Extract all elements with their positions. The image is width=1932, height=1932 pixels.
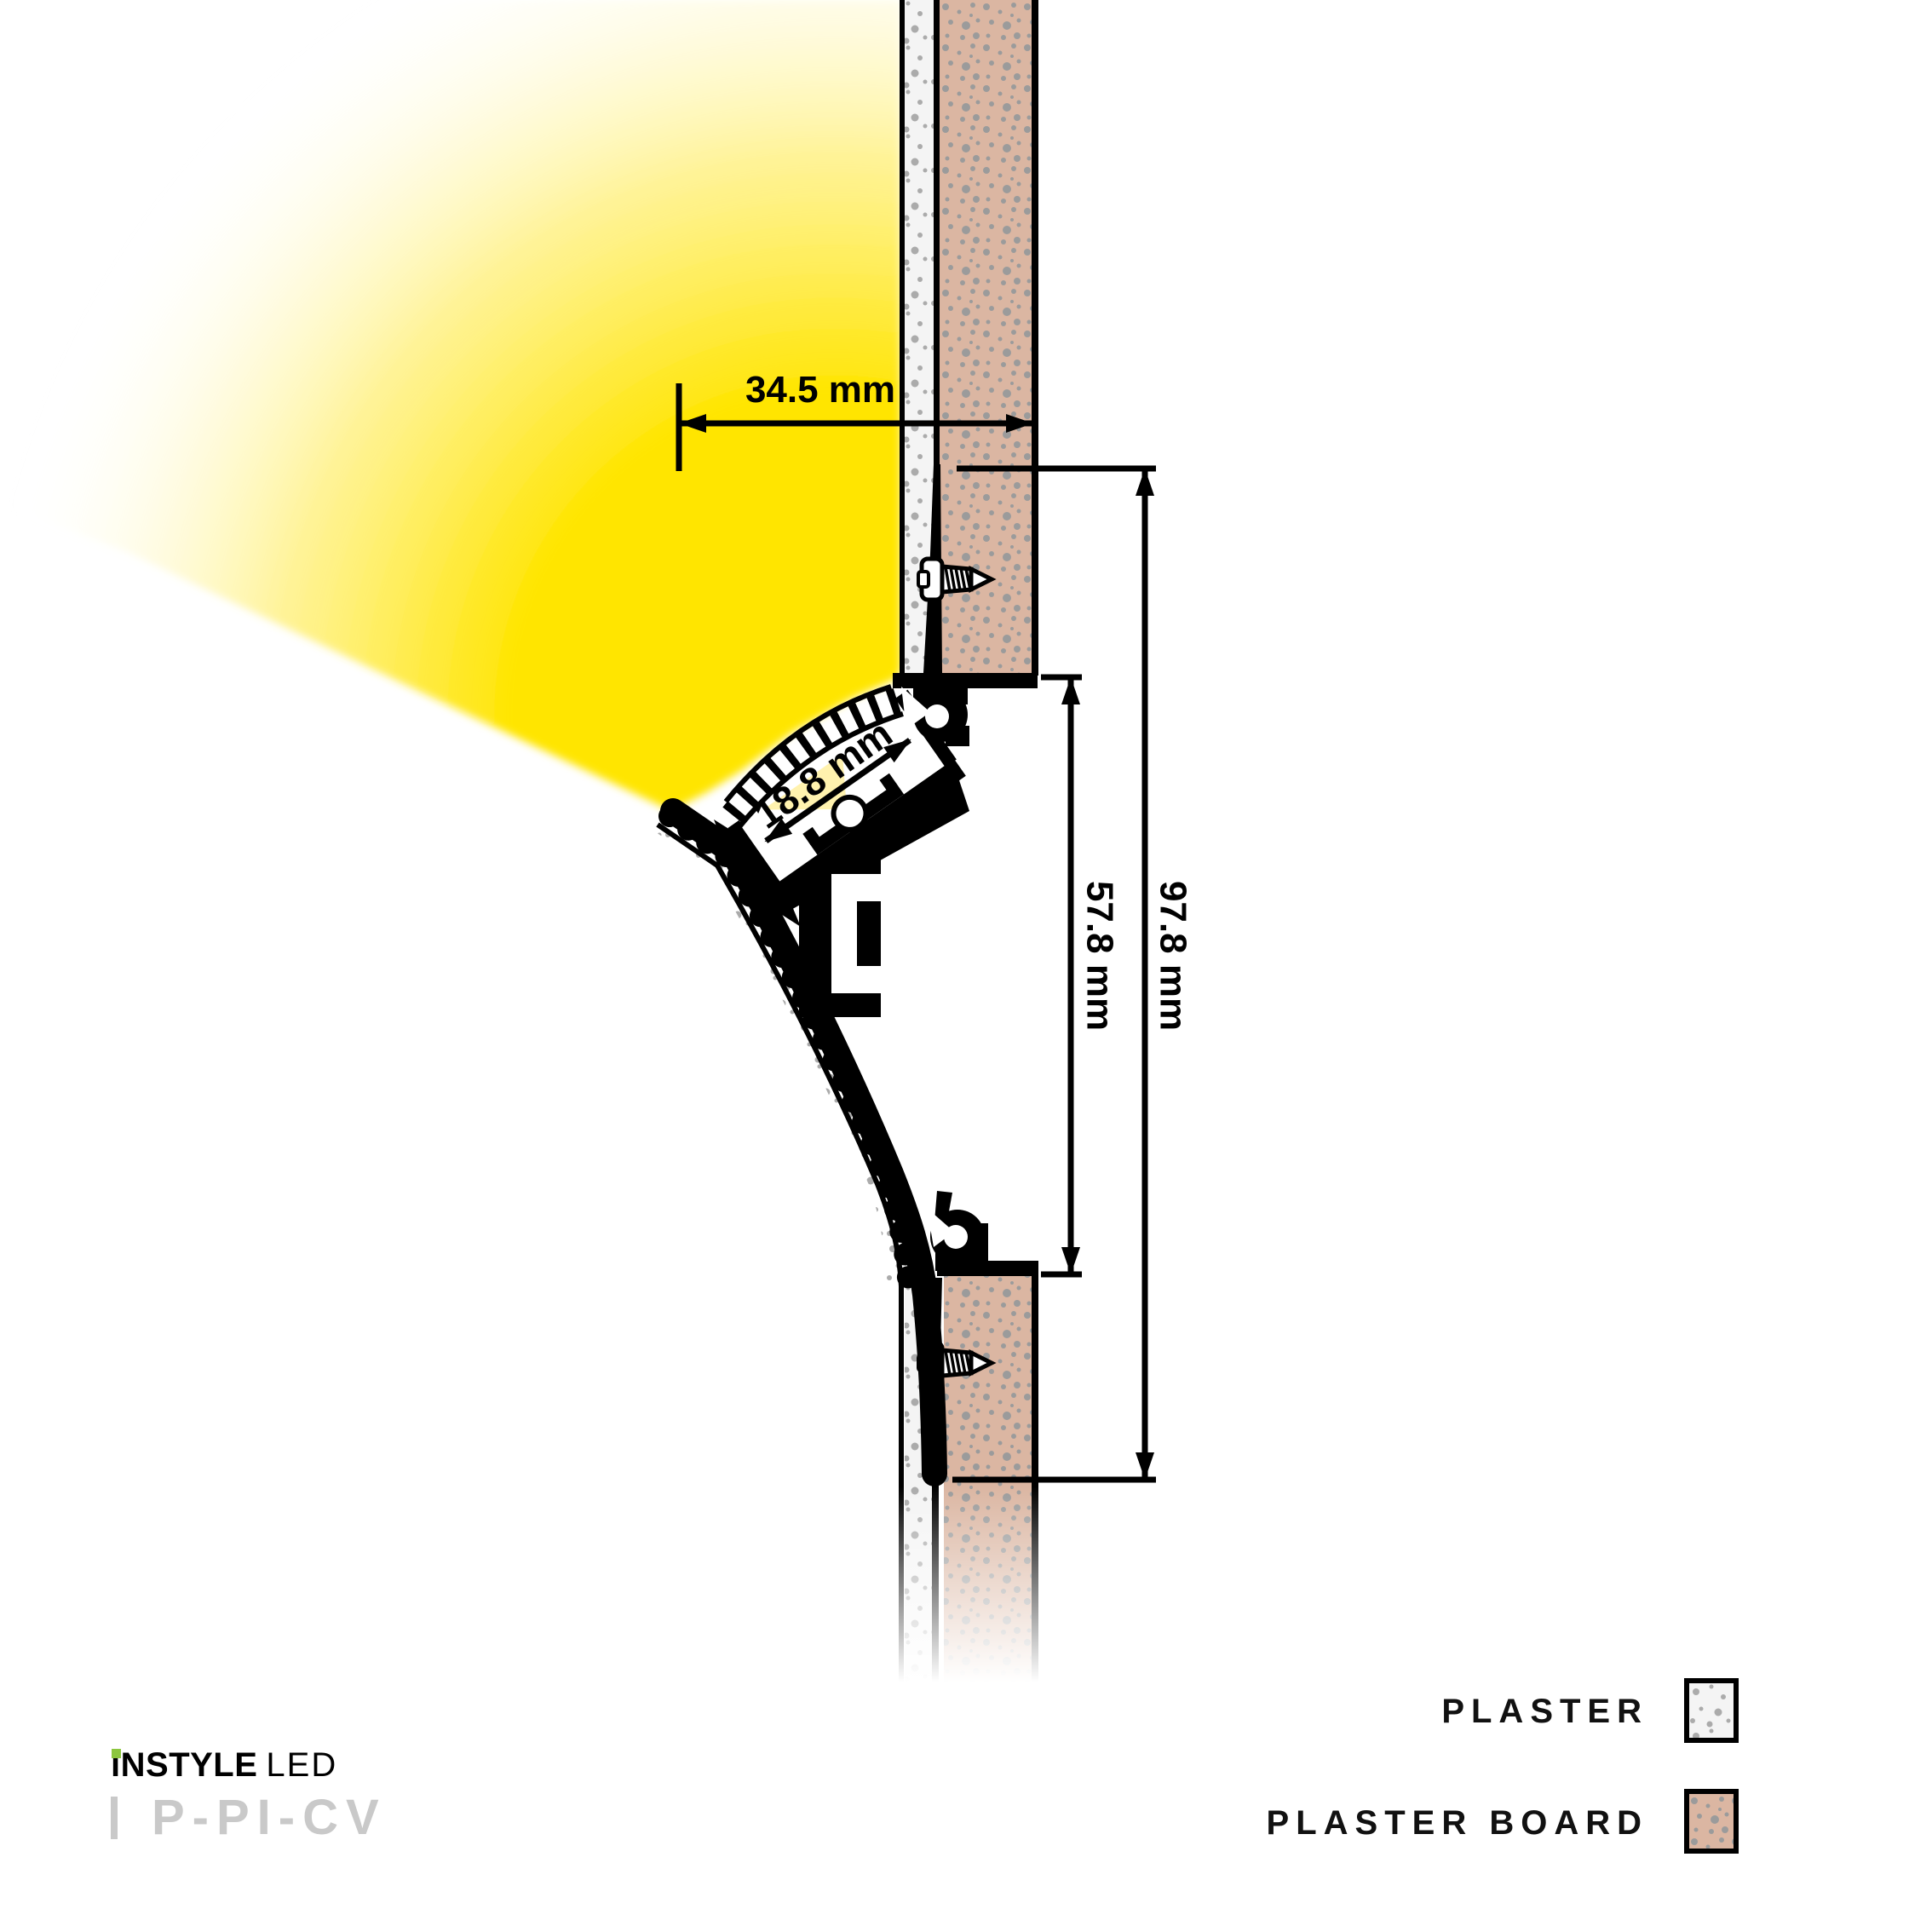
arrowhead-down-icon [1136,1452,1154,1480]
brand-name: ıNSTYLE [111,1746,257,1784]
wall-fade [869,1486,1082,1725]
diagram-stage: 18.8 mm 34.5 mm 57.8 [0,0,1932,1932]
profile-diagram-svg: 18.8 mm 34.5 mm 57.8 [0,0,1932,1932]
brand-name-rest: NSTYLE [121,1746,258,1784]
lower-clip [927,1191,988,1271]
brand-i-glyph: ı [111,1746,121,1785]
dimension-aperture: 57.8 mm [1041,677,1121,1274]
upper-wall-back-line [1032,0,1038,676]
dim-label-aperture: 57.8 mm [1079,881,1121,1031]
brand-i-dot-icon [112,1749,121,1758]
plaster-swatch-texture [1689,1683,1734,1738]
upper-wall-face-line [900,0,905,676]
legend-swatch-plaster-board [1684,1789,1739,1854]
dim-label-width: 34.5 mm [745,369,895,411]
product-code-text: P-PI-CV [152,1789,387,1846]
product-code: P-PI-CV [111,1789,387,1846]
brand-logo: ıNSTYLELED [111,1746,337,1785]
legend-swatch-plaster [1684,1678,1739,1743]
brand-suffix: LED [266,1746,337,1784]
dim-label-overall: 97.8 mm [1153,881,1194,1031]
arrowhead-up-icon [1136,469,1154,496]
legend-label-plaster: PLASTER [1441,1693,1648,1731]
plaster-board-swatch-texture [1689,1794,1734,1849]
arrowhead-down-icon [1061,1247,1080,1274]
arrowhead-up-icon [1061,677,1080,704]
legend-label-plaster-board: PLASTER BOARD [1267,1804,1648,1843]
product-code-bar [111,1797,118,1839]
upper-wall-joint-line [934,0,940,464]
